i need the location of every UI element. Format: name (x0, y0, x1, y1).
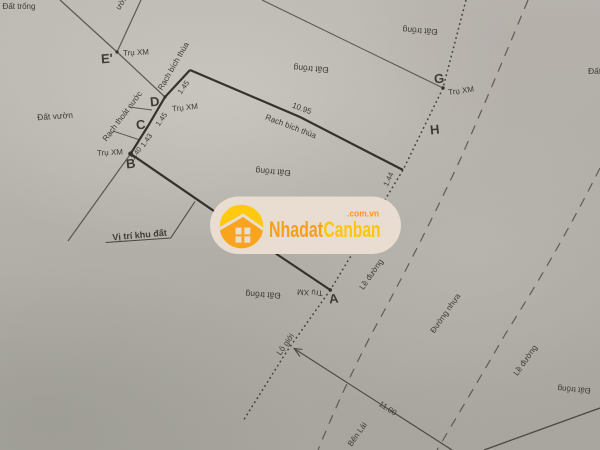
svg-text:Đất trống: Đất trống (245, 289, 281, 301)
svg-text:Trụ XM: Trụ XM (297, 287, 324, 297)
svg-text:G: G (433, 71, 445, 87)
svg-text:H: H (429, 122, 440, 138)
svg-text:Đất trống: Đất trống (3, 2, 36, 11)
svg-text:.com.vn: .com.vn (347, 209, 379, 219)
svg-text:Trụ XM: Trụ XM (123, 47, 150, 57)
svg-text:Trụ XM: Trụ XM (97, 147, 124, 157)
svg-text:Đất t: Đất t (588, 66, 600, 76)
svg-text:E': E' (101, 51, 114, 67)
svg-text:Nhadat: Nhadat (269, 217, 323, 242)
svg-text:Canban: Canban (324, 217, 381, 242)
svg-text:D: D (149, 94, 160, 110)
